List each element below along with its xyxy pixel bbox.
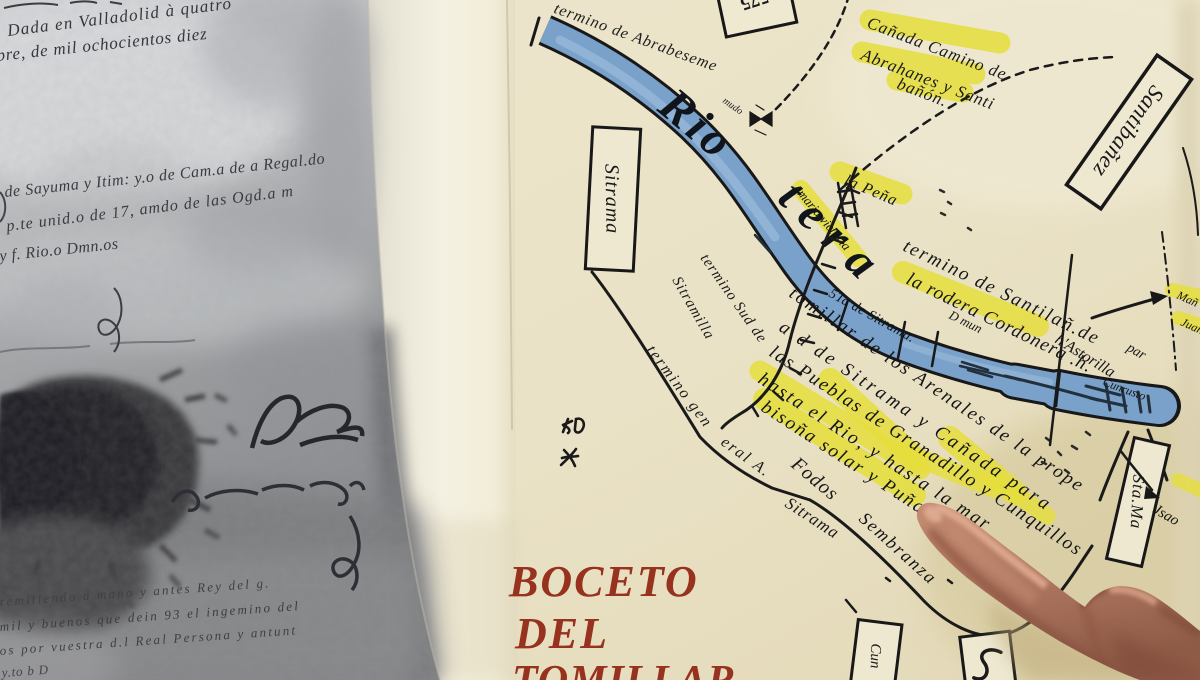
svg-text:Sitrama: Sitrama	[600, 164, 623, 235]
svg-text:TOMILLAR: TOMILLAR	[512, 658, 736, 680]
svg-text:BOCETO: BOCETO	[508, 557, 699, 606]
svg-text:Cun: Cun	[867, 643, 883, 668]
svg-text:DEL: DEL	[514, 609, 609, 658]
